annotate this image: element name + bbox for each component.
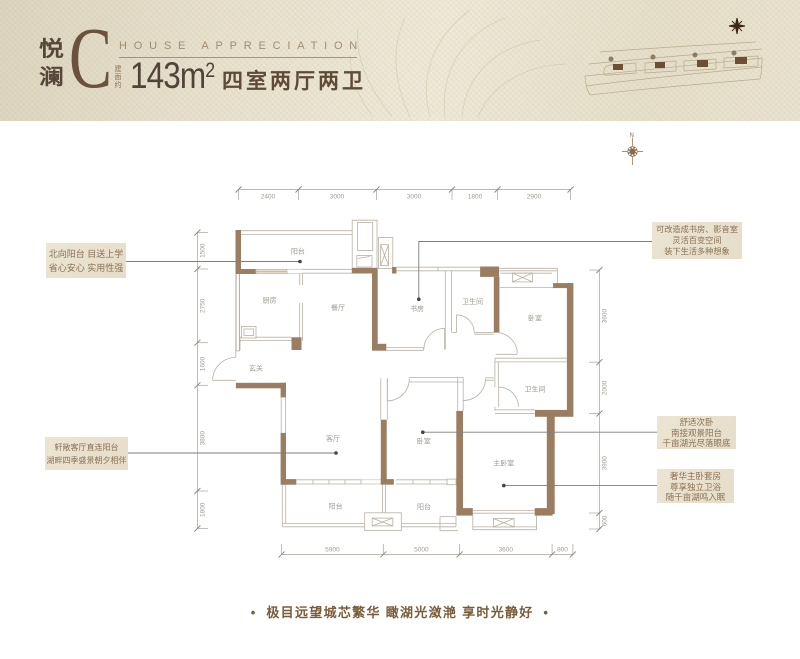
svg-text:3000: 3000 [407,194,422,201]
svg-text:卧室: 卧室 [528,314,542,323]
svg-text:2400: 2400 [261,194,276,201]
svg-text:卫生间: 卫生间 [462,297,483,306]
svg-text:600: 600 [602,515,609,526]
svg-text:阳台: 阳台 [291,247,305,256]
svg-text:餐厅: 餐厅 [331,303,345,312]
svg-text:3800: 3800 [200,431,207,446]
svg-text:800: 800 [557,546,568,553]
svg-text:主卧室: 主卧室 [493,459,514,468]
svg-text:1600: 1600 [200,356,207,371]
svg-text:阳台: 阳台 [329,501,343,510]
svg-text:3600: 3600 [499,546,514,553]
svg-text:1800: 1800 [468,194,483,201]
svg-text:3000: 3000 [330,194,345,201]
svg-text:3900: 3900 [602,456,609,471]
svg-text:5000: 5000 [414,546,429,553]
svg-text:3600: 3600 [602,308,609,323]
svg-text:阳台: 阳台 [417,502,431,511]
svg-text:2750: 2750 [200,298,207,313]
svg-text:1500: 1500 [200,243,207,258]
svg-text:客厅: 客厅 [326,434,340,443]
svg-text:2900: 2900 [527,194,542,201]
svg-text:卧室: 卧室 [417,436,431,445]
svg-text:厨房: 厨房 [263,296,277,305]
svg-text:书房: 书房 [410,304,424,313]
svg-text:5900: 5900 [325,546,340,553]
svg-text:玄关: 玄关 [249,363,263,372]
svg-text:卫生间: 卫生间 [525,385,546,394]
svg-text:1800: 1800 [200,502,207,517]
svg-text:2000: 2000 [602,380,609,395]
